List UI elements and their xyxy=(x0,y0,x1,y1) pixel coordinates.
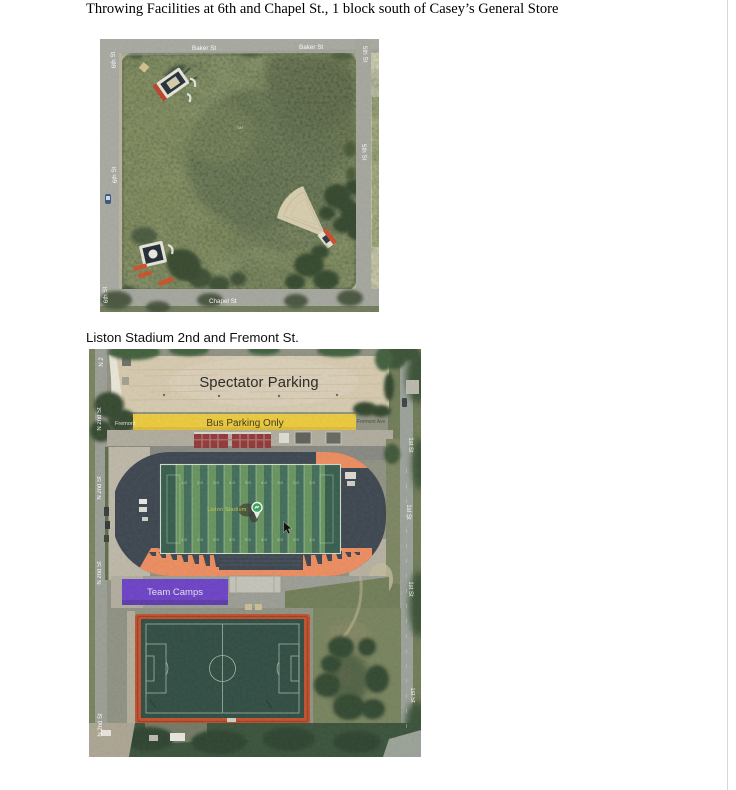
svg-text:5th St: 5th St xyxy=(360,144,368,161)
svg-text:5th St: 5th St xyxy=(361,46,369,63)
svg-text:N 2nd St: N 2nd St xyxy=(98,713,104,737)
svg-text:1st St: 1st St xyxy=(407,581,413,597)
svg-text:N 2nd St: N 2nd St xyxy=(97,407,103,431)
svg-text:N 2nd St: N 2nd St xyxy=(97,561,103,585)
svg-text:1st St: 1st St xyxy=(405,504,411,520)
svg-text:1st St: 1st St xyxy=(409,687,415,703)
svg-text:N 2nd St: N 2nd St xyxy=(97,476,103,500)
svg-text:Baker St: Baker St xyxy=(299,44,323,51)
svg-text:6th St: 6th St xyxy=(102,286,110,303)
svg-text:6th St: 6th St xyxy=(111,166,119,183)
svg-text:1st St: 1st St xyxy=(407,437,413,453)
svg-text:Baker St: Baker St xyxy=(192,45,216,52)
svg-text:6th St: 6th St xyxy=(110,51,118,68)
svg-text:Chapel St: Chapel St xyxy=(209,298,237,305)
svg-text:N 2: N 2 xyxy=(99,357,105,367)
